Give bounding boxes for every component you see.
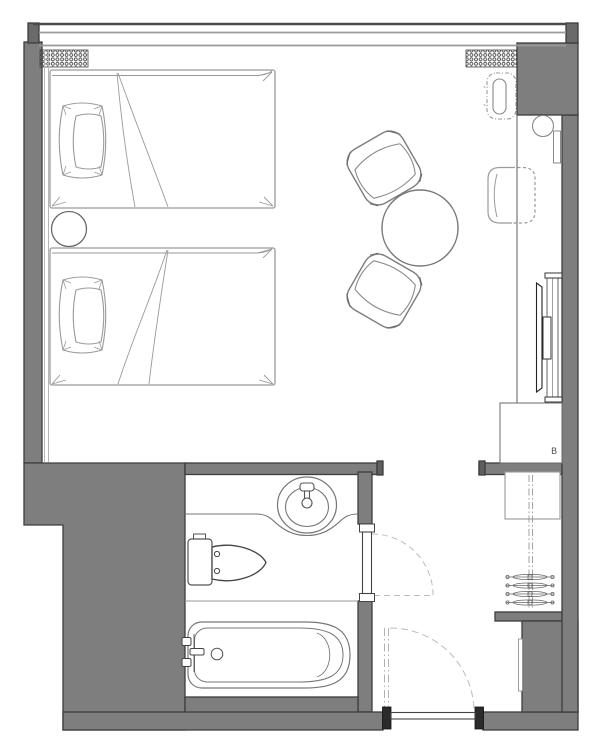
wall-bathroom-bottom xyxy=(185,697,358,713)
sink-vanity xyxy=(185,477,358,536)
minibar-cabinet: B xyxy=(500,403,562,463)
hanger-icon xyxy=(506,583,554,588)
wall-poche-bottom-left xyxy=(24,463,185,730)
entry-door-swing-arc xyxy=(390,628,474,712)
bathroom-door-leaf xyxy=(363,532,372,594)
wall-closet-bottom-bar xyxy=(495,612,562,621)
window-cap-right xyxy=(566,23,578,43)
wall-corner-top-right xyxy=(517,43,578,115)
faucet-icon xyxy=(300,483,314,508)
wall-left xyxy=(24,42,42,463)
vents xyxy=(40,50,517,67)
wall-bottom-right xyxy=(483,712,578,730)
toilet xyxy=(188,534,266,585)
wall-face-lines xyxy=(45,50,49,462)
hanger-icon xyxy=(506,600,554,605)
bathroom-door-swing-arc xyxy=(372,534,433,595)
tv-bracket-bottom xyxy=(545,397,562,402)
hanger-icon xyxy=(506,574,554,579)
bathroom-door-jamb-top xyxy=(360,524,375,532)
wall-right xyxy=(562,115,578,712)
window-cap-left xyxy=(28,23,39,43)
entry-door-leaf xyxy=(391,713,475,720)
wall-panel xyxy=(554,131,561,163)
wall-cap-left-of-passage xyxy=(377,461,383,475)
vent-grille-right-icon xyxy=(466,50,517,67)
tv-mount-plate xyxy=(543,317,551,359)
bathroom-door xyxy=(360,524,434,602)
bed-2 xyxy=(50,248,275,385)
entry-door-jamb-right xyxy=(475,707,484,729)
tv xyxy=(537,273,563,402)
bathtub xyxy=(182,622,350,688)
wall-bathroom-east-upper xyxy=(358,472,372,524)
vent-grille-left-icon xyxy=(40,50,88,67)
wall-bathroom-east-lower xyxy=(358,601,372,712)
wall-bottom-left xyxy=(63,712,383,730)
hangers xyxy=(506,574,554,605)
window-band xyxy=(33,24,567,46)
wall-cap-right-of-passage xyxy=(479,461,485,475)
nightstand xyxy=(52,212,87,247)
wall-bathroom-top xyxy=(185,463,377,475)
desk-lamp xyxy=(533,116,554,137)
bathroom-door-jamb-bottom xyxy=(360,594,375,602)
minibar-badge: B xyxy=(551,447,557,457)
pillow-1 xyxy=(59,103,106,178)
round-table xyxy=(382,190,458,266)
entry-door-jamb-left xyxy=(383,707,392,729)
wardrobe xyxy=(505,472,560,608)
entry-door-open-line xyxy=(385,628,389,709)
tv-screen xyxy=(537,283,543,392)
tv-bracket-top xyxy=(545,273,562,278)
hanger-icon xyxy=(506,591,554,596)
desk-chair xyxy=(488,168,535,224)
pillow-2 xyxy=(59,277,106,353)
floor-plan: B xyxy=(0,0,600,748)
entry-door xyxy=(383,628,484,729)
door-pocket-strip xyxy=(519,639,523,691)
luggage-rack xyxy=(484,73,517,119)
bed-1 xyxy=(50,70,275,208)
